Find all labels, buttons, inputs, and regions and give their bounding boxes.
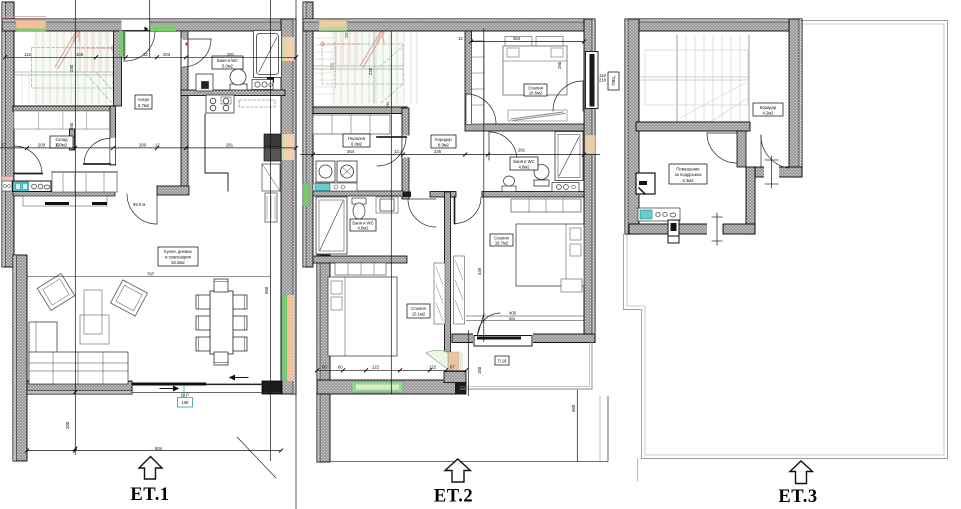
svg-text:250: 250	[69, 122, 74, 130]
svg-text:12: 12	[55, 143, 60, 148]
svg-text:6.0м2: 6.0м2	[351, 142, 363, 147]
svg-text:12: 12	[155, 143, 160, 148]
svg-text:52.6м2: 52.6м2	[171, 260, 185, 265]
svg-text:560: 560	[264, 286, 269, 294]
svg-text:767: 767	[147, 272, 155, 277]
svg-text:99.0 м: 99.0 м	[133, 202, 145, 207]
svg-text:4.8м2: 4.8м2	[357, 226, 369, 231]
svg-text:и трапезария: и трапезария	[165, 255, 191, 260]
svg-text:200: 200	[38, 143, 46, 148]
svg-text:ПВЦ: ПВЦ	[611, 76, 616, 86]
svg-text:за поддръжка: за поддръжка	[675, 172, 702, 177]
svg-text:ET.3: ET.3	[778, 487, 817, 507]
svg-text:Ш.Р: Ш.Р	[181, 393, 189, 398]
svg-text:Коридор: Коридор	[435, 137, 452, 142]
svg-text:250: 250	[330, 62, 335, 70]
svg-text:12.4: 12.4	[394, 149, 403, 154]
svg-text:122: 122	[372, 365, 380, 370]
svg-text:ET.1: ET.1	[130, 485, 169, 505]
svg-text:Антре: Антре	[138, 97, 150, 102]
svg-text:16.7м2: 16.7м2	[495, 241, 509, 246]
svg-text:Коридор: Коридор	[760, 105, 777, 110]
svg-text:6.7м2: 6.7м2	[138, 103, 150, 108]
svg-text:Помещение: Помещение	[676, 167, 700, 172]
svg-text:264: 264	[347, 149, 355, 154]
svg-text:87: 87	[450, 365, 455, 370]
svg-text:560: 560	[571, 404, 576, 412]
svg-text:160: 160	[477, 366, 482, 374]
svg-text:122: 122	[429, 365, 437, 370]
svg-text:230: 230	[386, 102, 390, 108]
svg-text:200: 200	[65, 421, 70, 429]
svg-text:Пералня: Пералня	[348, 136, 365, 141]
svg-text:250: 250	[557, 61, 562, 69]
svg-text:364: 364	[513, 36, 521, 41]
svg-text:112: 112	[24, 52, 31, 57]
svg-text:203: 203	[163, 52, 171, 57]
svg-text:П.18: П.18	[498, 359, 508, 364]
svg-text:449: 449	[477, 267, 482, 275]
svg-text:ET.2: ET.2	[434, 487, 473, 507]
svg-text:5.0м2: 5.0м2	[222, 64, 234, 69]
svg-text:57: 57	[1, 143, 6, 148]
svg-text:Кухня, дневна: Кухня, дневна	[164, 249, 192, 254]
svg-text:230: 230	[345, 32, 349, 38]
svg-text:60: 60	[322, 365, 327, 370]
svg-text:220: 220	[368, 67, 373, 75]
svg-text:12: 12	[143, 52, 148, 57]
svg-text:Баня и WC: Баня и WC	[513, 159, 534, 164]
svg-text:281: 281	[226, 143, 234, 148]
svg-text:230: 230	[69, 64, 74, 72]
svg-text:Баня и WC: Баня и WC	[217, 58, 238, 63]
svg-text:12: 12	[458, 36, 463, 41]
svg-text:Склад: Склад	[55, 137, 68, 142]
svg-text:236: 236	[434, 149, 442, 154]
svg-text:805: 805	[509, 317, 515, 321]
svg-text:200: 200	[139, 143, 147, 148]
svg-text:10.6м2: 10.6м2	[529, 91, 543, 96]
svg-text:60: 60	[338, 365, 343, 370]
svg-text:218: 218	[599, 78, 607, 83]
svg-text:6.3м2: 6.3м2	[682, 178, 694, 183]
svg-text:Спалня: Спалня	[411, 306, 426, 311]
svg-text:281: 281	[227, 52, 235, 57]
svg-text:804: 804	[155, 446, 163, 451]
svg-text:8.9м2: 8.9м2	[438, 143, 450, 148]
svg-text:4.8м2: 4.8м2	[518, 165, 530, 170]
svg-text:4.2м2: 4.2м2	[762, 111, 774, 116]
svg-text:281: 281	[518, 147, 526, 152]
svg-text:15.1м2: 15.1м2	[412, 312, 426, 317]
svg-text:405: 405	[509, 310, 517, 315]
svg-text:108: 108	[182, 400, 190, 405]
svg-text:169: 169	[76, 52, 84, 57]
